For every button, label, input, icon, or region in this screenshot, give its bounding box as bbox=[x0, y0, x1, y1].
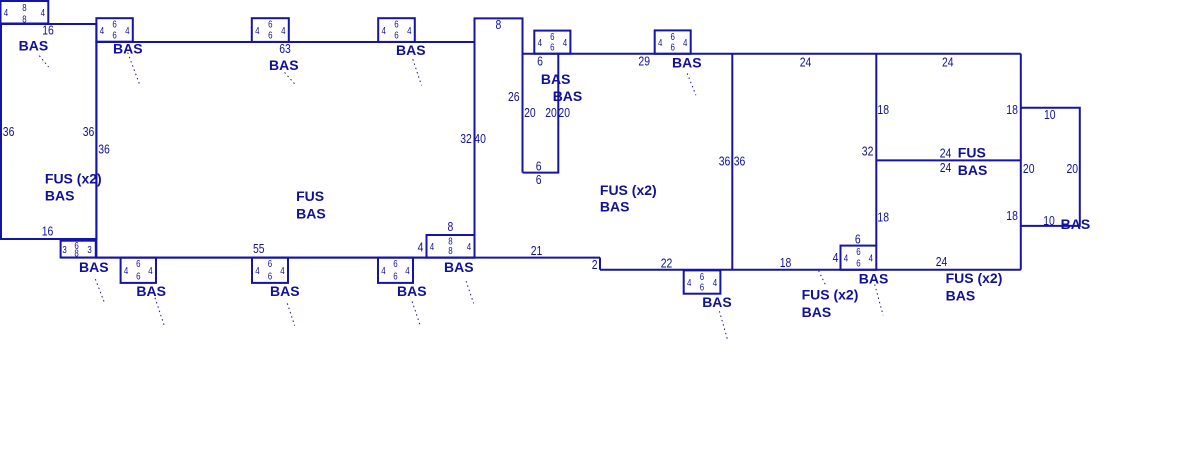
svg-text:4: 4 bbox=[100, 26, 105, 37]
svg-text:FUS (x2): FUS (x2) bbox=[946, 270, 1003, 286]
svg-text:18: 18 bbox=[877, 103, 889, 117]
svg-text:3: 3 bbox=[87, 245, 92, 256]
svg-text:8: 8 bbox=[448, 246, 453, 257]
svg-text:6: 6 bbox=[268, 31, 273, 42]
svg-text:4: 4 bbox=[833, 251, 839, 265]
svg-text:4: 4 bbox=[418, 240, 424, 254]
svg-text:4: 4 bbox=[869, 254, 874, 265]
svg-text:6: 6 bbox=[700, 282, 705, 293]
svg-text:BAS: BAS bbox=[45, 187, 75, 203]
svg-text:32: 32 bbox=[862, 144, 874, 158]
svg-text:6: 6 bbox=[268, 20, 273, 31]
svg-text:4: 4 bbox=[538, 38, 543, 49]
svg-text:6: 6 bbox=[136, 272, 141, 283]
svg-text:BAS: BAS bbox=[541, 71, 571, 87]
svg-text:BAS: BAS bbox=[946, 287, 976, 303]
svg-text:4: 4 bbox=[125, 26, 130, 37]
svg-text:36: 36 bbox=[98, 143, 110, 157]
svg-text:BAS: BAS bbox=[79, 259, 109, 275]
svg-text:FUS (x2): FUS (x2) bbox=[45, 170, 102, 186]
svg-text:6: 6 bbox=[393, 259, 398, 270]
svg-text:6: 6 bbox=[671, 32, 676, 43]
svg-text:16: 16 bbox=[42, 224, 54, 238]
svg-text:BAS: BAS bbox=[396, 42, 426, 58]
svg-text:20: 20 bbox=[558, 106, 570, 120]
svg-text:8: 8 bbox=[448, 220, 454, 234]
svg-text:24: 24 bbox=[942, 55, 954, 69]
svg-text:6: 6 bbox=[856, 247, 861, 258]
svg-text:10: 10 bbox=[1043, 214, 1055, 228]
svg-text:6: 6 bbox=[536, 159, 542, 173]
svg-text:6: 6 bbox=[136, 259, 141, 270]
svg-text:BAS: BAS bbox=[397, 283, 427, 299]
svg-text:8: 8 bbox=[22, 14, 27, 25]
svg-text:BAS: BAS bbox=[702, 294, 732, 310]
svg-text:4: 4 bbox=[658, 38, 663, 49]
svg-text:BAS: BAS bbox=[802, 304, 832, 320]
svg-text:FUS: FUS bbox=[296, 188, 324, 204]
svg-text:BAS: BAS bbox=[136, 283, 166, 299]
svg-text:6: 6 bbox=[268, 272, 273, 283]
svg-text:4: 4 bbox=[4, 8, 9, 19]
svg-text:4: 4 bbox=[124, 266, 129, 277]
svg-text:6: 6 bbox=[112, 20, 117, 31]
svg-text:6: 6 bbox=[856, 258, 861, 269]
svg-text:24: 24 bbox=[940, 161, 952, 175]
svg-text:36: 36 bbox=[734, 154, 746, 168]
svg-text:FUS: FUS bbox=[958, 145, 986, 161]
svg-text:6: 6 bbox=[393, 272, 398, 283]
svg-text:BAS: BAS bbox=[19, 38, 49, 54]
svg-text:4: 4 bbox=[713, 278, 718, 289]
svg-text:BAS: BAS bbox=[672, 55, 702, 71]
svg-text:2: 2 bbox=[592, 258, 598, 272]
svg-text:26: 26 bbox=[508, 90, 520, 104]
svg-text:29: 29 bbox=[638, 55, 650, 69]
svg-text:6: 6 bbox=[550, 42, 555, 53]
svg-text:18: 18 bbox=[1006, 103, 1018, 117]
svg-text:3: 3 bbox=[62, 245, 67, 256]
svg-text:4: 4 bbox=[430, 242, 435, 253]
svg-text:4: 4 bbox=[148, 266, 153, 277]
svg-text:BAS: BAS bbox=[444, 259, 474, 275]
svg-text:6: 6 bbox=[700, 272, 705, 283]
svg-text:4: 4 bbox=[255, 26, 260, 37]
svg-text:24: 24 bbox=[936, 255, 948, 269]
svg-text:FUS (x2): FUS (x2) bbox=[802, 286, 859, 302]
svg-text:24: 24 bbox=[940, 147, 952, 161]
svg-text:36: 36 bbox=[3, 125, 15, 139]
svg-text:8: 8 bbox=[22, 3, 27, 14]
svg-text:4: 4 bbox=[467, 242, 472, 253]
svg-text:BAS: BAS bbox=[296, 206, 326, 222]
svg-text:20: 20 bbox=[524, 106, 536, 120]
svg-text:22: 22 bbox=[661, 257, 673, 271]
svg-text:6: 6 bbox=[536, 173, 542, 187]
svg-text:6: 6 bbox=[268, 259, 273, 270]
svg-text:36: 36 bbox=[83, 125, 95, 139]
svg-text:FUS (x2): FUS (x2) bbox=[600, 182, 657, 198]
svg-text:10: 10 bbox=[1044, 108, 1056, 122]
svg-text:63: 63 bbox=[279, 42, 291, 56]
svg-text:4: 4 bbox=[255, 266, 260, 277]
svg-text:6: 6 bbox=[394, 31, 399, 42]
svg-text:32: 32 bbox=[460, 132, 472, 146]
svg-text:18: 18 bbox=[780, 256, 792, 270]
svg-text:4: 4 bbox=[844, 254, 849, 265]
svg-text:20: 20 bbox=[1067, 162, 1079, 176]
svg-text:BAS: BAS bbox=[859, 270, 889, 286]
svg-text:4: 4 bbox=[563, 38, 568, 49]
svg-text:24: 24 bbox=[800, 55, 812, 69]
svg-text:6: 6 bbox=[537, 55, 543, 69]
svg-text:20: 20 bbox=[545, 106, 557, 120]
svg-text:40: 40 bbox=[474, 132, 486, 146]
svg-text:4: 4 bbox=[407, 26, 412, 37]
svg-text:18: 18 bbox=[1006, 209, 1018, 223]
svg-text:4: 4 bbox=[41, 8, 46, 19]
svg-text:4: 4 bbox=[280, 266, 285, 277]
svg-text:6: 6 bbox=[394, 20, 399, 31]
svg-text:8: 8 bbox=[496, 18, 502, 32]
svg-text:6: 6 bbox=[671, 42, 676, 53]
svg-text:BAS: BAS bbox=[269, 57, 299, 73]
svg-text:4: 4 bbox=[381, 266, 386, 277]
svg-text:16: 16 bbox=[42, 24, 54, 38]
svg-text:20: 20 bbox=[1023, 162, 1035, 176]
svg-text:6: 6 bbox=[855, 232, 861, 246]
svg-text:18: 18 bbox=[877, 210, 889, 224]
svg-text:BAS: BAS bbox=[553, 88, 583, 104]
svg-text:BAS: BAS bbox=[958, 162, 988, 178]
svg-text:55: 55 bbox=[253, 242, 265, 256]
svg-text:4: 4 bbox=[382, 26, 387, 37]
svg-text:21: 21 bbox=[531, 244, 543, 258]
svg-text:36: 36 bbox=[719, 154, 731, 168]
svg-text:BAS: BAS bbox=[600, 199, 630, 215]
svg-text:BAS: BAS bbox=[1061, 216, 1091, 232]
svg-text:4: 4 bbox=[687, 278, 692, 289]
svg-text:4: 4 bbox=[281, 26, 286, 37]
svg-text:4: 4 bbox=[405, 266, 410, 277]
svg-text:BAS: BAS bbox=[270, 283, 300, 299]
svg-text:4: 4 bbox=[683, 38, 688, 49]
